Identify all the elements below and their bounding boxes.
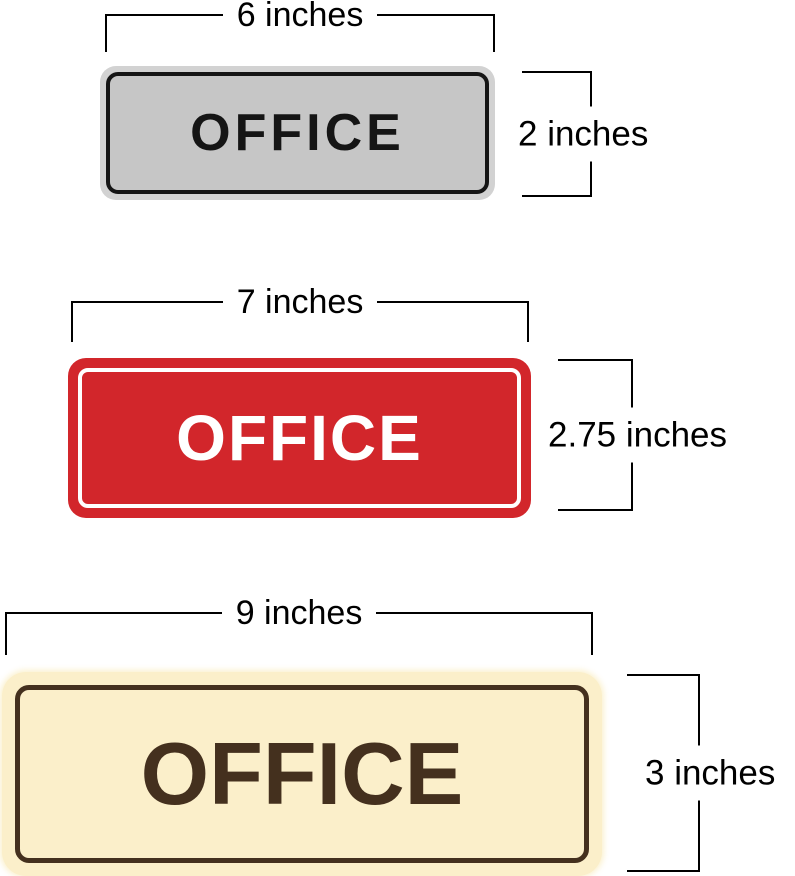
width-dimension-label: 9 inches xyxy=(222,596,377,630)
dimension-line xyxy=(105,14,223,16)
width-dimension-label: 7 inches xyxy=(223,285,378,319)
dimension-tick xyxy=(591,612,593,655)
height-dimension-2in: 2 inches xyxy=(522,71,592,197)
sign-dimension-diagram: 6 inches OFFICE 2 inches 7 inches OFFICE… xyxy=(0,0,795,876)
dimension-tick xyxy=(105,14,107,52)
height-dimension-label: 2.75 inches xyxy=(548,408,731,463)
office-sign-gray-label: OFFICE xyxy=(190,103,405,163)
office-sign-red-label: OFFICE xyxy=(176,401,423,475)
dimension-line xyxy=(71,301,223,303)
width-dimension-6in: 6 inches xyxy=(105,0,495,32)
dimension-tick xyxy=(493,14,495,52)
dimension-line xyxy=(377,14,495,16)
height-dimension-label: 3 inches xyxy=(645,746,779,801)
office-sign-red-face: OFFICE xyxy=(78,368,521,508)
office-sign-cream-face: OFFICE xyxy=(15,685,589,863)
dimension-tick xyxy=(71,301,73,342)
dimension-line xyxy=(376,612,593,614)
office-sign-red: OFFICE xyxy=(68,358,531,518)
office-sign-gray: OFFICE xyxy=(100,66,495,200)
office-sign-cream: OFFICE xyxy=(2,672,602,876)
dimension-tick xyxy=(527,301,529,342)
width-dimension-7in: 7 inches xyxy=(71,285,529,319)
dimension-line xyxy=(377,301,529,303)
height-dimension-2-75in: 2.75 inches xyxy=(558,359,633,511)
office-sign-cream-label: OFFICE xyxy=(141,723,464,825)
width-dimension-label: 6 inches xyxy=(223,0,378,32)
width-dimension-9in: 9 inches xyxy=(5,596,593,630)
dimension-tick xyxy=(5,612,7,655)
height-dimension-label: 2 inches xyxy=(518,107,652,162)
dimension-line xyxy=(5,612,222,614)
height-dimension-3in: 3 inches xyxy=(627,674,700,872)
office-sign-gray-face: OFFICE xyxy=(106,72,489,194)
